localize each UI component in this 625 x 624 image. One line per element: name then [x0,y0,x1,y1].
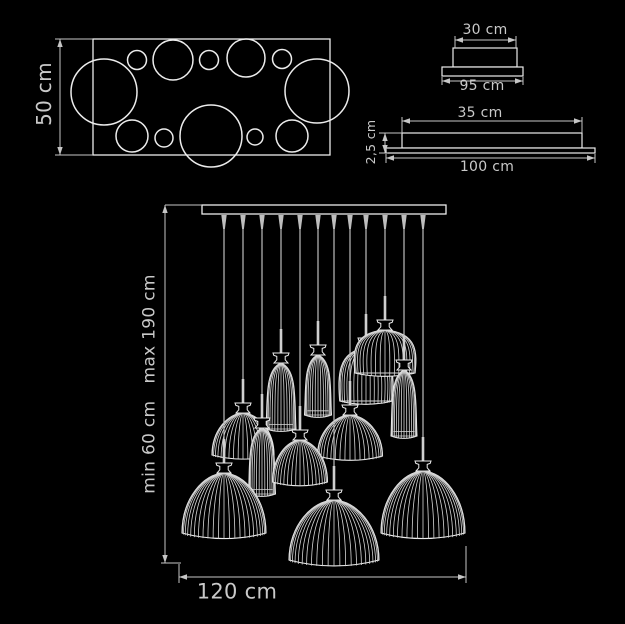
shade-circle [247,129,263,145]
cord-cone [382,215,387,229]
dimension-label-profile-height: 2,5 cm [365,120,378,165]
shade-neck-fitting [235,403,251,413]
pendant-dome_large [381,215,465,539]
cord-cone [420,215,425,229]
cord-cone [297,215,302,229]
shade-circle [155,129,173,147]
dimension-label-drop-range: min 60 cm max 190 cm [142,274,159,493]
shade-neck-fitting [342,405,358,415]
cord-cone [240,215,245,229]
shade-circle [116,120,148,152]
lamp-dimension-diagram: 50 cm 30 cm 95 cm 35 cm 2,5 cm 100 cm mi… [0,0,625,624]
shade-circle [273,50,292,69]
dimension-label-fixture-width: 120 cm [197,582,278,603]
shade-neck-fitting [310,345,326,355]
cord-cone [259,215,264,229]
pendant-tulip [305,215,332,417]
top-view [55,39,349,167]
shade-circle [200,51,219,70]
cord-cone [278,215,283,229]
diagram-svg [0,0,625,624]
cord-cone [315,215,320,229]
cord-cone [347,215,352,229]
shade-circle [128,51,147,70]
shade-circle [227,39,265,77]
dimension-label-canopy-base-width: 95 cm [459,79,504,93]
shade-circle [180,105,242,167]
pendant-tulip [391,215,417,438]
cord-cone [401,215,406,229]
shade-neck-fitting [292,430,308,440]
profile-view [379,117,595,163]
pendant-tulip [249,215,276,496]
ceiling-bar [202,205,446,214]
shade-neck-fitting [273,353,289,363]
front-view [161,205,466,583]
shade-circle [285,59,349,123]
shade-neck-fitting [216,463,232,473]
cord-cone [363,215,368,229]
pendant-bell [354,215,416,376]
shade-circle [276,120,308,152]
cord-cone [331,215,336,229]
shade-circle [153,40,193,80]
dimension-label-top-view-height: 50 cm [34,62,54,126]
shade-neck-fitting [415,461,431,471]
pendant-tulip [266,215,296,431]
dimension-label-profile-width: 35 cm [457,106,502,120]
shade-circle [71,59,137,125]
dimension-label-canopy-width: 30 cm [462,23,507,37]
shade-neck-fitting [326,490,342,500]
dimension-label-profile-base-width: 100 cm [460,160,514,174]
diagram-canvas [0,0,625,624]
cord-cone [221,215,226,229]
shade-neck-fitting [377,320,393,330]
